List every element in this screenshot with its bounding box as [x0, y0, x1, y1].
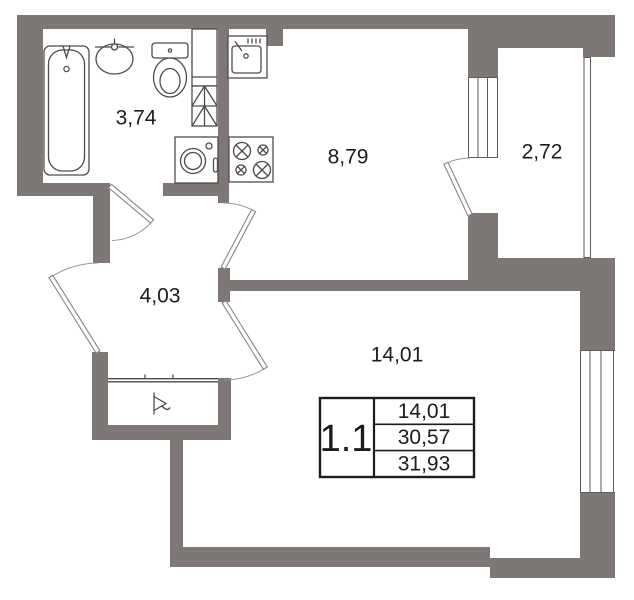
wall-left [17, 15, 43, 196]
wardrobe [108, 375, 218, 382]
door-leaf [221, 210, 255, 270]
area-label-kitchen: 8,79 [328, 146, 369, 169]
door-leaf [49, 275, 100, 353]
kitchen-balcony-window [468, 77, 498, 158]
wall-bottom-right [490, 558, 615, 578]
info-table-row-2: 30,57 [398, 426, 451, 449]
bathroom-door [109, 184, 154, 240]
info-table-row-3: 31,93 [398, 452, 451, 475]
wall-bottom-left [170, 547, 490, 567]
wall-bath-bottom-left [17, 183, 110, 196]
bathtub-outline [44, 46, 89, 175]
wall-hall-left [93, 196, 110, 263]
walls [17, 15, 615, 578]
wardrobe-ticks [145, 375, 173, 379]
kitchen-sink [228, 36, 267, 78]
door-arc [223, 203, 254, 211]
door-arc [51, 263, 98, 277]
vent-shaft [192, 86, 217, 126]
door-arc [112, 221, 152, 240]
area-label-balcony: 2,72 [522, 141, 563, 164]
washing-machine [175, 137, 218, 183]
toilet-bowl [154, 58, 187, 97]
floor-plan-page: 3,74 8,79 2,72 4,03 14,01 1.1 14,01 30,5… [0, 0, 634, 600]
wardrobe-front-lines [108, 379, 218, 382]
basin-tap [112, 44, 118, 50]
window-opening [580, 350, 615, 493]
wall-right-upper [580, 291, 615, 350]
bathtub [44, 46, 89, 175]
door-leaf [109, 184, 154, 223]
kitchen-door [221, 203, 255, 269]
wall-middle [218, 280, 472, 291]
balcony-glazing [584, 57, 592, 258]
toilet [152, 43, 188, 97]
stove [229, 137, 273, 182]
window-opening [468, 77, 498, 158]
door-leaf [444, 162, 472, 216]
entrance-door [49, 263, 100, 353]
door-leaf [222, 301, 267, 370]
wall-balcony-pillar-top [468, 29, 498, 77]
room-door [222, 301, 267, 380]
unit-number: 1.1 [320, 418, 373, 460]
area-label-hallway: 4,03 [140, 285, 181, 308]
wall-closet-bottom [92, 425, 231, 440]
wall-closet-right [218, 378, 231, 440]
info-table: 1.1 14,01 30,57 31,93 [320, 398, 474, 477]
floor-plan: 3,74 8,79 2,72 4,03 14,01 1.1 14,01 30,5… [0, 0, 634, 600]
cupboard [192, 29, 217, 86]
toilet-tank [152, 43, 188, 58]
wall-top-right-corner [583, 15, 615, 57]
balcony-door [444, 158, 472, 216]
wall-balcony-bottom [468, 258, 615, 291]
area-label-bathroom: 3,74 [116, 107, 157, 130]
washbasin [95, 39, 134, 75]
wall-pier-sink [266, 29, 283, 46]
glazing-lines [584, 57, 592, 258]
arrow-tail [162, 406, 170, 409]
area-label-living-room: 14,01 [371, 344, 424, 367]
entrance-arrow-icon [154, 393, 170, 415]
door-arc [446, 158, 470, 163]
info-table-row-1: 14,01 [398, 400, 451, 423]
room-window [580, 350, 615, 493]
